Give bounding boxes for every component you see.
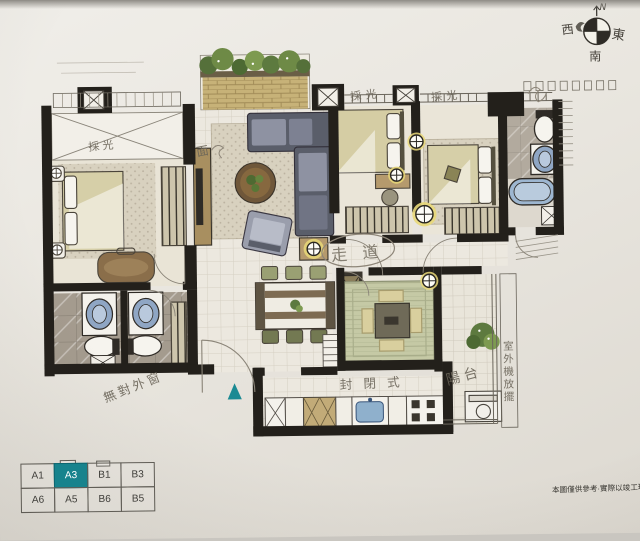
annotation-corridor: 走道 (330, 237, 394, 266)
compass-west-label: 西 (561, 20, 575, 38)
annotation-closed-style: 封閉式 (339, 371, 411, 394)
unit-cell-a6[interactable]: A6 (21, 487, 56, 513)
unit-cell-b5[interactable]: B5 (121, 486, 156, 512)
lightwell-window-master (51, 112, 183, 160)
annotation-daylight-left: 採光 (87, 136, 117, 155)
photographed-floorplan-sheet: 採光 採光 採光 面 走道 無對外窗 封閉式 陽台 室外機放擺 西 東 南 N … (0, 0, 640, 541)
dining-set (255, 266, 335, 344)
kitchen-counter (265, 396, 445, 428)
unit-cell-b6[interactable]: B6 (87, 487, 122, 513)
tatami-room (344, 281, 434, 365)
annotation-daylight-right: 採光 (430, 86, 462, 105)
compass-south-label: 南 (589, 47, 601, 64)
unit-cell-b3[interactable]: B3 (120, 462, 155, 488)
floor-plan-drawing (0, 0, 640, 541)
annotation-outdoor-unit: 室外機放擺 (501, 340, 517, 436)
bedroom3-furniture (423, 139, 501, 235)
unit-cell-a1[interactable]: A1 (20, 463, 55, 489)
compass-north-label: N (600, 3, 607, 13)
unit-cell-b1[interactable]: B1 (87, 462, 122, 488)
unit-selector: A1 A3 B1 B3 A6 A5 B6 B5 (21, 463, 155, 513)
planter-balcony (199, 47, 311, 110)
entry-marker-triangle (227, 383, 241, 399)
unit-cell-a3[interactable]: A3 (54, 463, 89, 489)
unit-cell-a5[interactable]: A5 (54, 487, 89, 513)
